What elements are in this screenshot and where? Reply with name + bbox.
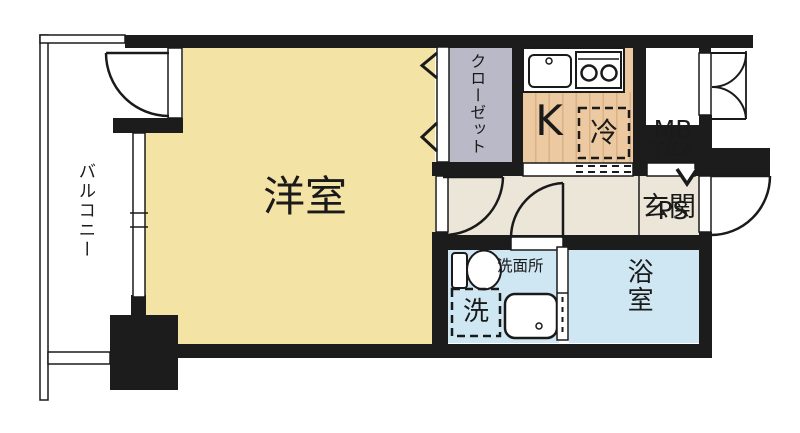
wall-stub-top-left [113, 118, 183, 133]
washer-label: 洗 [462, 298, 490, 326]
mbps-door-leaf [699, 53, 711, 115]
wall-window-stub [131, 295, 146, 317]
kitchen-label: K [529, 98, 569, 143]
wall-closet-kitchen [512, 35, 523, 176]
refrigerator-label: 冷 [589, 118, 619, 148]
wall-right-upper [699, 115, 712, 176]
balcony-top-rail [40, 35, 125, 43]
balcony-door-leaf [168, 48, 182, 118]
wall-kitchen-right [633, 35, 646, 176]
entrance-label: 玄関 [640, 193, 698, 222]
bathroom-label: 浴室 [624, 258, 652, 320]
wall-outside-bar [712, 148, 770, 176]
wall-closet-bottom [432, 162, 523, 176]
kitchen-opening-band [523, 163, 633, 176]
balcony-left-rail [40, 35, 48, 400]
western-room-floor-upper [183, 48, 435, 134]
western-room-label: 洋室 [225, 174, 385, 219]
wall-mbps-corner [699, 35, 711, 53]
western-room-floor [145, 133, 435, 347]
entrance-door-leaf-strip [699, 176, 711, 232]
mbps-door-arc-bottom [712, 87, 746, 119]
mbps-door-arc-top [712, 53, 746, 87]
washroom-label: 洗面所 [497, 258, 544, 275]
window-sliding [133, 133, 145, 297]
wall-right-lower [699, 232, 712, 356]
meter-box-line1: MB [646, 116, 700, 143]
meter-box-label: MB PS [646, 62, 700, 278]
balcony-door-arc [106, 53, 169, 116]
closet-door-strip [437, 47, 449, 162]
closet-label: クローゼット [468, 53, 485, 163]
entrance-door-arc [711, 176, 770, 235]
balcony-label: バルコニー [76, 162, 95, 287]
shoe-storage-label: 下足入 [646, 141, 698, 157]
balcony-bottom-rail [48, 352, 110, 364]
floor-plan: バルコニー 洋室 クローゼット K 冷 MB PS 下足入 玄関 洗面所 洗 浴… [0, 0, 800, 433]
